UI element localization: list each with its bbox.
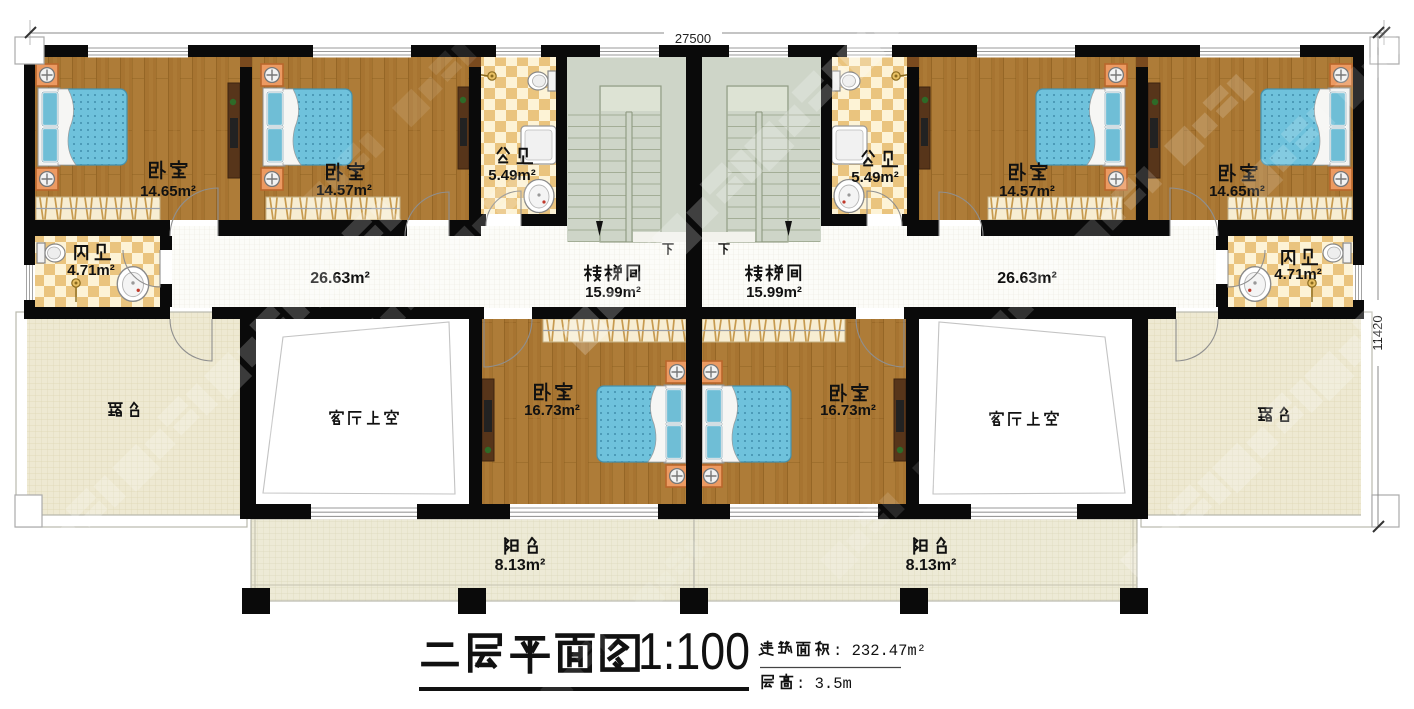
svg-text:14.57m²: 14.57m² <box>999 183 1055 200</box>
svg-text:27500: 27500 <box>675 31 711 46</box>
svg-text:5.49m²: 5.49m² <box>851 169 899 186</box>
svg-text:: 232.47m²: : 232.47m² <box>833 642 926 660</box>
svg-text:15.99m²: 15.99m² <box>746 284 802 301</box>
svg-text:16.73m²: 16.73m² <box>524 402 580 419</box>
svg-text:8.13m²: 8.13m² <box>495 557 546 574</box>
svg-text:1:100: 1:100 <box>638 623 750 681</box>
svg-text:14.65m²: 14.65m² <box>140 183 196 200</box>
svg-text:16.73m²: 16.73m² <box>820 402 876 419</box>
svg-text:4.71m²: 4.71m² <box>67 262 115 279</box>
svg-text:: 3.5m: : 3.5m <box>796 675 852 693</box>
svg-text:8.13m²: 8.13m² <box>906 557 957 574</box>
svg-text:4.71m²: 4.71m² <box>1274 266 1322 283</box>
